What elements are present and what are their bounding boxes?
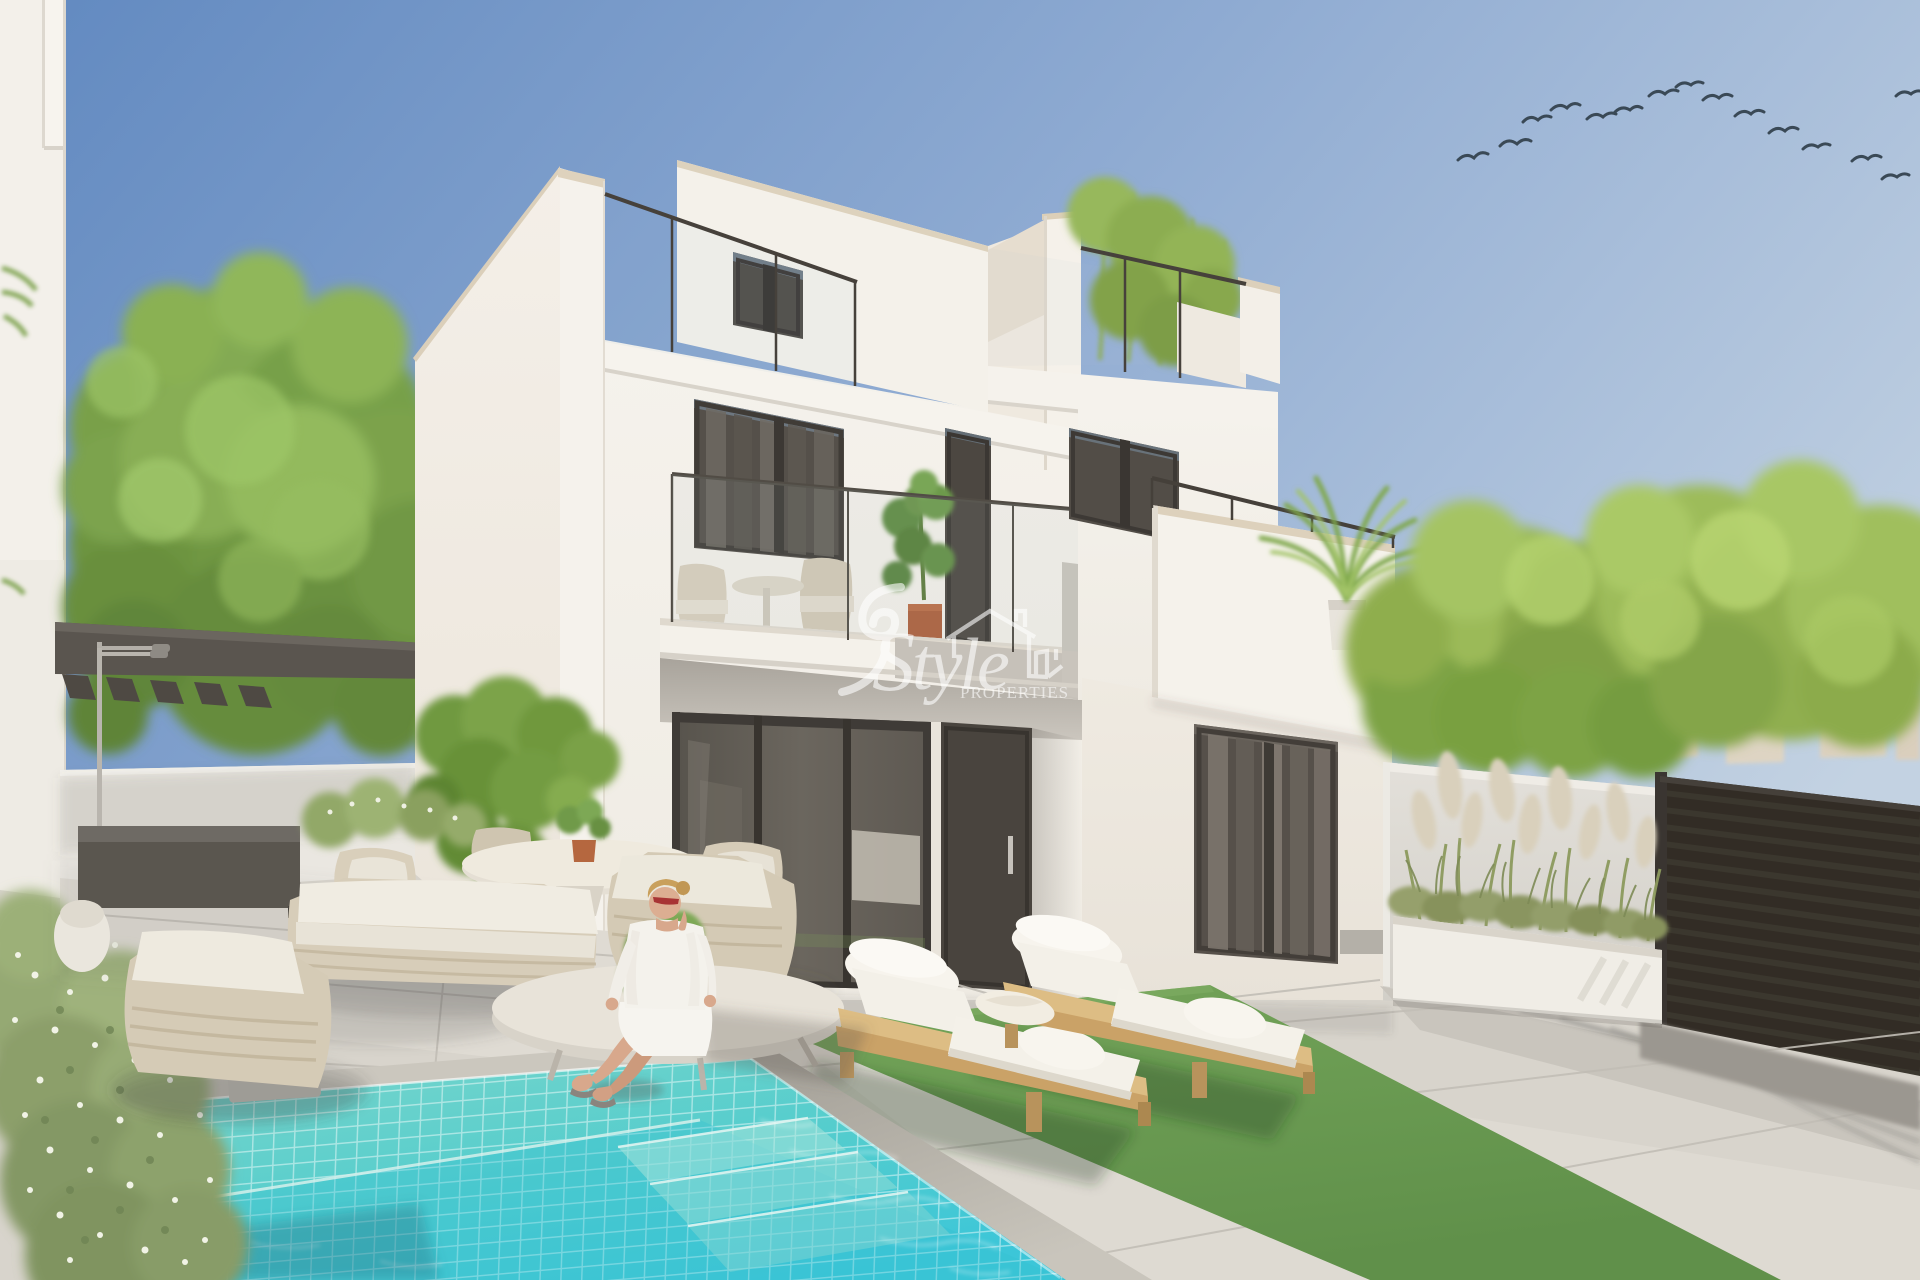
svg-text:S: S [872, 613, 915, 709]
svg-text:PROPERTIES: PROPERTIES [960, 683, 1069, 702]
